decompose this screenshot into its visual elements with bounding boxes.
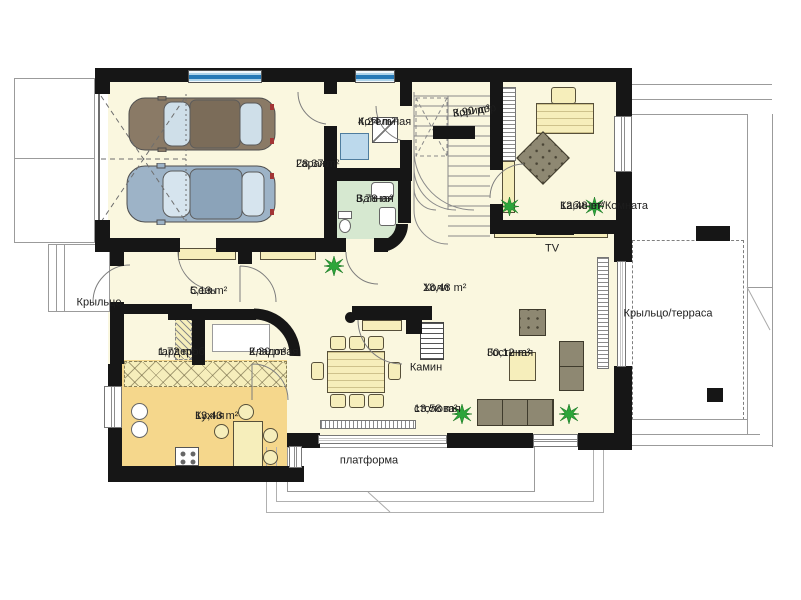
label-fireplace: Камин bbox=[410, 361, 442, 376]
window bbox=[614, 116, 632, 172]
window bbox=[104, 386, 122, 428]
wall bbox=[110, 302, 124, 364]
window-glass-block bbox=[188, 70, 262, 83]
door-arc bbox=[298, 92, 326, 124]
wall bbox=[400, 82, 412, 106]
room-area: 1,72 m² bbox=[158, 345, 195, 360]
room-area: 12,48 m² bbox=[560, 199, 603, 214]
wall bbox=[374, 238, 388, 252]
door-arc bbox=[240, 266, 276, 302]
fireplace-arc bbox=[358, 320, 402, 364]
wall bbox=[398, 181, 411, 223]
room-area: 30,12 m² bbox=[487, 346, 530, 361]
wall bbox=[168, 309, 256, 320]
terrace-pillar bbox=[696, 226, 730, 241]
window bbox=[533, 434, 578, 447]
room-area: 3,78 m² bbox=[356, 192, 393, 207]
label-platform: платформа bbox=[340, 454, 398, 469]
wall bbox=[614, 366, 632, 450]
wall bbox=[108, 364, 122, 388]
wall bbox=[108, 466, 304, 482]
wall bbox=[108, 238, 180, 252]
room-area: 28,37 m² bbox=[296, 157, 339, 172]
sliding-door bbox=[318, 435, 447, 444]
room-area: 13,58 m² bbox=[414, 402, 457, 417]
wall bbox=[447, 433, 533, 448]
room-area: 4,24 m² bbox=[358, 115, 395, 130]
wall bbox=[324, 82, 337, 94]
wall bbox=[616, 82, 632, 118]
wall bbox=[490, 220, 616, 234]
wall bbox=[110, 252, 124, 266]
floor-plan: Гараж 28,37 m² Котельная 4,24 m² Коридор… bbox=[0, 0, 801, 600]
label-porch: Крыльцо bbox=[77, 296, 122, 311]
fireplace-wall bbox=[406, 320, 422, 334]
wall bbox=[400, 140, 412, 168]
label-tv: TV bbox=[545, 242, 559, 257]
wall bbox=[337, 168, 412, 181]
wall bbox=[324, 126, 337, 242]
room-area: 2,30 m² bbox=[249, 345, 286, 360]
room-area: 18,48 m² bbox=[423, 281, 466, 296]
room-area: 13,43 m² bbox=[195, 409, 238, 424]
terrace-pillar bbox=[707, 388, 723, 402]
window-glass-block bbox=[355, 70, 395, 83]
window bbox=[289, 446, 302, 468]
wall bbox=[614, 234, 632, 262]
wall bbox=[490, 82, 503, 170]
door-arc bbox=[346, 252, 378, 284]
wall bbox=[300, 433, 320, 448]
door-arc bbox=[252, 364, 288, 400]
room-area: 5,13 m² bbox=[190, 284, 227, 299]
fireplace-wall bbox=[352, 306, 432, 320]
label-terrace: Крыльцо/терраса bbox=[624, 307, 713, 322]
garage-door bbox=[99, 94, 186, 224]
wall bbox=[433, 126, 475, 139]
wall bbox=[95, 82, 110, 94]
wall bbox=[238, 252, 252, 264]
